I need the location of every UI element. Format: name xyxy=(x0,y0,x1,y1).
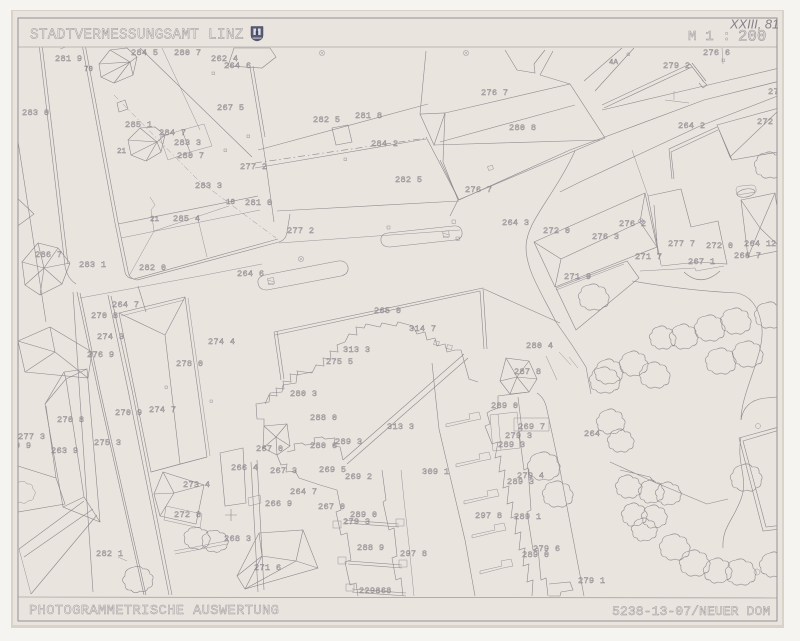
svg-text:284 7: 284 7 xyxy=(159,128,186,138)
svg-text:273 4: 273 4 xyxy=(183,480,210,490)
svg-text:285 1: 285 1 xyxy=(125,120,152,130)
svg-text:282 5: 282 5 xyxy=(395,175,422,185)
svg-text:70: 70 xyxy=(84,66,94,74)
svg-text:280 4: 280 4 xyxy=(526,341,553,351)
svg-text:229868: 229868 xyxy=(359,586,392,596)
svg-text:270 9: 270 9 xyxy=(115,408,142,418)
svg-text:288 0: 288 0 xyxy=(310,413,337,423)
svg-text:297 8: 297 8 xyxy=(400,549,427,559)
svg-text:264 7: 264 7 xyxy=(112,300,139,310)
svg-text:276 7: 276 7 xyxy=(465,185,492,195)
svg-text:264 2: 264 2 xyxy=(678,121,705,131)
svg-text:267 0: 267 0 xyxy=(256,444,283,454)
svg-text:265 0: 265 0 xyxy=(374,306,401,316)
svg-text:200: 200 xyxy=(738,28,767,46)
svg-text:281 0: 281 0 xyxy=(245,198,272,208)
svg-text:STADTVERMESSUNGSAMT LINZ: STADTVERMESSUNGSAMT LINZ xyxy=(30,28,244,44)
svg-text:280 8: 280 8 xyxy=(509,123,536,133)
svg-text:264 6: 264 6 xyxy=(224,61,251,71)
svg-text:264 7: 264 7 xyxy=(290,487,317,497)
svg-text:267 5: 267 5 xyxy=(217,103,244,113)
svg-text:276 6: 276 6 xyxy=(703,48,730,58)
svg-text:269 5: 269 5 xyxy=(319,465,346,475)
svg-text:276 3: 276 3 xyxy=(592,232,619,242)
svg-text:267 3: 267 3 xyxy=(270,466,297,476)
svg-text:10: 10 xyxy=(226,199,236,207)
svg-text:281 8: 281 8 xyxy=(355,111,382,121)
svg-text:274 7: 274 7 xyxy=(149,405,176,415)
svg-text:274 4: 274 4 xyxy=(208,337,235,347)
svg-text:283 0: 283 0 xyxy=(22,108,49,118)
svg-text:280 7: 280 7 xyxy=(177,151,204,161)
svg-text:287 8: 287 8 xyxy=(514,367,541,377)
svg-text:282 0: 282 0 xyxy=(139,263,166,273)
svg-text:314 7: 314 7 xyxy=(409,324,436,334)
svg-text:21: 21 xyxy=(150,216,160,224)
svg-text:279 1: 279 1 xyxy=(578,576,605,586)
svg-text:279 2: 279 2 xyxy=(663,61,690,71)
svg-text:309 1: 309 1 xyxy=(422,467,449,477)
svg-text:266 9: 266 9 xyxy=(265,499,292,509)
svg-text:272 0: 272 0 xyxy=(543,226,570,236)
svg-text:289 3: 289 3 xyxy=(498,440,525,450)
svg-text:289 0: 289 0 xyxy=(522,550,549,560)
svg-text:266 7: 266 7 xyxy=(734,251,761,261)
svg-text:280 6: 280 6 xyxy=(310,441,337,451)
svg-text:277 2: 277 2 xyxy=(240,162,267,172)
svg-text:271 6: 271 6 xyxy=(254,563,281,573)
svg-text:297 8: 297 8 xyxy=(475,511,502,521)
svg-text:5238-13-07/NEUER DOM: 5238-13-07/NEUER DOM xyxy=(612,604,770,619)
svg-text:264 6: 264 6 xyxy=(237,269,264,279)
svg-text:263 9: 263 9 xyxy=(51,446,78,456)
svg-text:266 4: 266 4 xyxy=(231,463,258,473)
svg-text:267 1: 267 1 xyxy=(688,257,715,267)
svg-text:264 3: 264 3 xyxy=(502,218,529,228)
svg-text:313 3: 313 3 xyxy=(387,422,414,432)
svg-text:283 3: 283 3 xyxy=(195,181,222,191)
svg-text:268 3: 268 3 xyxy=(224,534,251,544)
svg-text:281 9: 281 9 xyxy=(55,54,82,64)
svg-text:276 9: 276 9 xyxy=(87,350,114,360)
svg-text:272 8: 272 8 xyxy=(174,510,201,520)
svg-text:267 0: 267 0 xyxy=(318,502,345,512)
svg-text:278 0: 278 0 xyxy=(176,359,203,369)
svg-text:M 1 :: M 1 : xyxy=(688,29,731,45)
svg-text:270 8: 270 8 xyxy=(91,311,118,321)
svg-text:276 2: 276 2 xyxy=(619,219,646,229)
svg-text:283 1: 283 1 xyxy=(79,260,106,270)
svg-text:264: 264 xyxy=(584,429,600,439)
svg-text:282 5: 282 5 xyxy=(313,115,340,125)
svg-text:271 7: 271 7 xyxy=(635,252,662,262)
svg-text:272: 272 xyxy=(757,117,773,127)
svg-text:286 7: 286 7 xyxy=(35,250,62,260)
svg-text:PHOTOGRAMMETRISCHE AUSWERTUNG: PHOTOGRAMMETRISCHE AUSWERTUNG xyxy=(29,604,279,619)
svg-text:277 2: 277 2 xyxy=(287,226,314,236)
svg-text:275 3: 275 3 xyxy=(94,438,121,448)
svg-text:277 7: 277 7 xyxy=(668,239,695,249)
svg-text:283 3: 283 3 xyxy=(174,138,201,148)
svg-text:289 3: 289 3 xyxy=(335,437,362,447)
svg-text:313 3: 313 3 xyxy=(343,345,370,355)
svg-text:4A: 4A xyxy=(609,59,619,67)
svg-text:264 1: 264 1 xyxy=(744,239,771,249)
svg-text:21: 21 xyxy=(117,148,127,156)
svg-text:274 3: 274 3 xyxy=(97,332,124,342)
svg-text:275 5: 275 5 xyxy=(326,357,353,367)
svg-text:280 3: 280 3 xyxy=(290,389,317,399)
svg-text:284 5: 284 5 xyxy=(131,48,158,58)
svg-text:276 7: 276 7 xyxy=(481,88,508,98)
svg-text:279 3: 279 3 xyxy=(343,517,370,527)
svg-text:288 9: 288 9 xyxy=(357,543,384,553)
svg-text:289 3: 289 3 xyxy=(507,477,534,487)
svg-text:289 1: 289 1 xyxy=(514,512,541,522)
svg-text:270 8: 270 8 xyxy=(57,415,84,425)
svg-text:284 2: 284 2 xyxy=(371,139,398,149)
svg-text:289 0: 289 0 xyxy=(491,401,518,411)
svg-text:282 1: 282 1 xyxy=(96,549,123,559)
svg-text:280 7: 280 7 xyxy=(174,48,201,58)
svg-text:271 9: 271 9 xyxy=(564,272,591,282)
svg-text:269 2: 269 2 xyxy=(345,472,372,482)
svg-text:272 0: 272 0 xyxy=(706,241,733,251)
svg-text:285 4: 285 4 xyxy=(173,214,200,224)
